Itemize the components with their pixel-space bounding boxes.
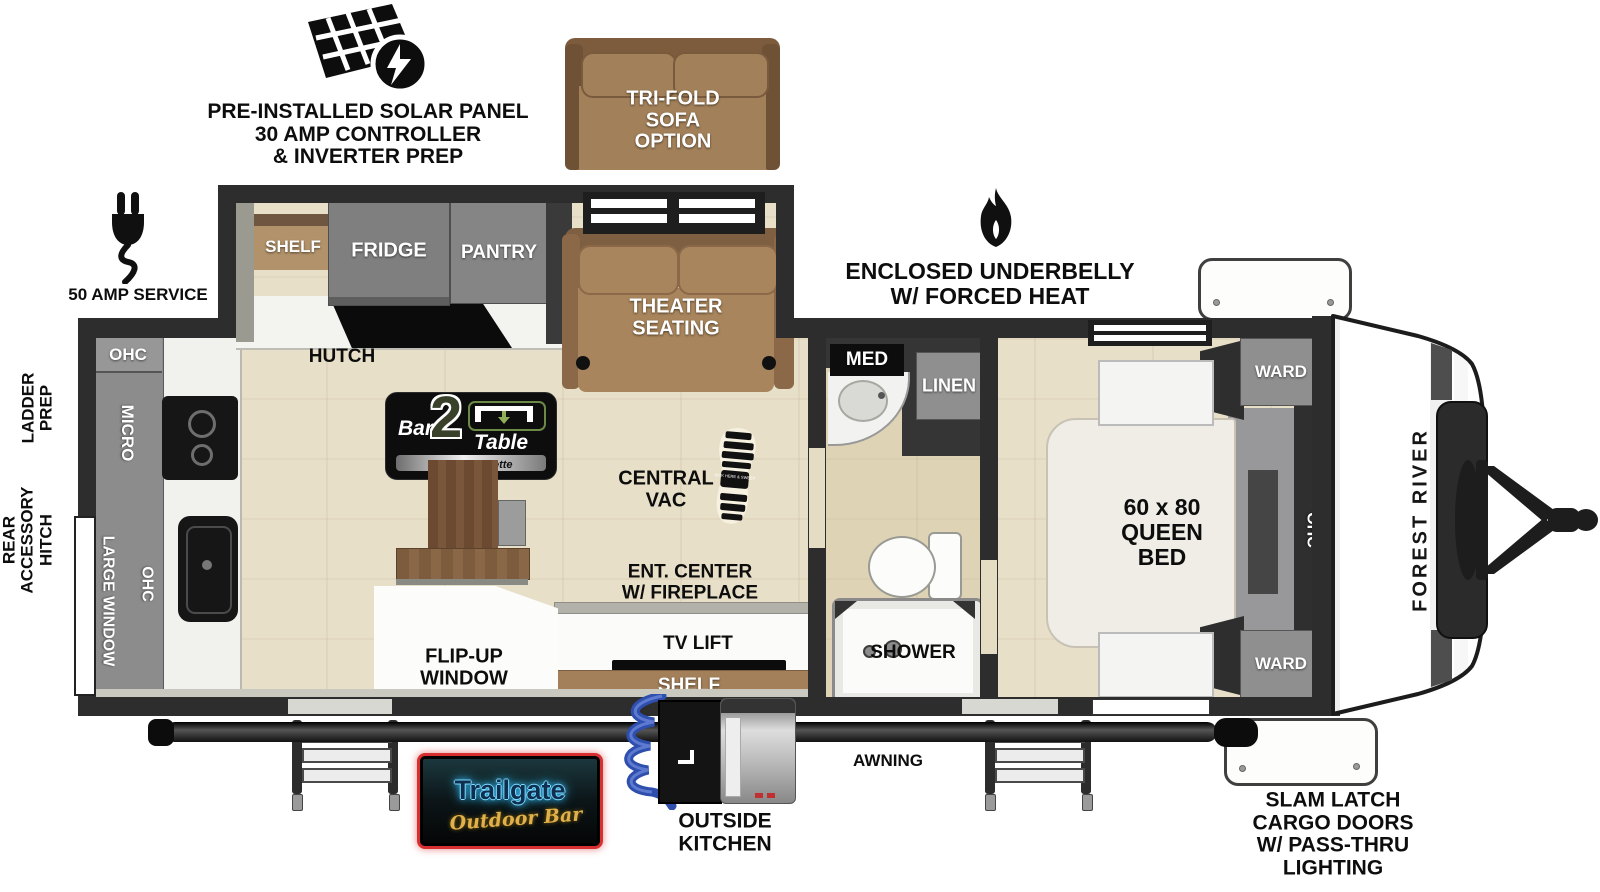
ent-line2: W/ FIREPLACE — [622, 583, 758, 604]
solar-line1: PRE-INSTALLED SOLAR PANEL — [207, 101, 528, 124]
bar2table-bar: Bar — [398, 417, 433, 441]
tv-lift-label: TV LIFT — [663, 634, 733, 654]
entry-door-gap-right — [962, 699, 1058, 714]
flip-line1: FLIP-UP — [420, 646, 508, 668]
entry-door-gap-left — [288, 699, 392, 714]
hutch-label: HUTCH — [309, 347, 376, 367]
bootprint-icon: KICK HERE & SWEEP — [708, 424, 763, 528]
solar-annotation: PRE-INSTALLED SOLAR PANEL 30 AMP CONTROL… — [207, 101, 528, 169]
outside-kitchen-appliance — [720, 698, 796, 804]
theater-label: THEATER SEATING — [630, 296, 723, 339]
kitchen-ohc-side-label: OHC — [138, 566, 155, 602]
tri-fold-sofa: TRI-FOLD SOFA OPTION — [565, 38, 780, 172]
med-label: MED — [846, 350, 888, 370]
dinette-bench — [498, 500, 526, 546]
wall-slide-right — [776, 185, 794, 338]
kitchen-sink — [178, 516, 238, 622]
kitchen-large-window-label: LARGE WINDOW — [99, 536, 116, 667]
linen-label: LINEN — [922, 377, 976, 396]
window-bedroom-top — [1088, 320, 1212, 346]
tri-fold-label: TRI-FOLD SOFA OPTION — [626, 89, 719, 154]
bar2table-num: 2 — [430, 389, 462, 447]
central-vac-line2: VAC — [618, 490, 714, 512]
theater-line1: THEATER — [630, 296, 723, 318]
kitchen-micro-label: MICRO — [118, 405, 136, 462]
trailgate-logo: Trailgate Outdoor Bar — [417, 753, 603, 849]
bed-line3: BED — [1121, 544, 1203, 569]
hitch — [1452, 438, 1600, 602]
ent-line1: ENT. CENTER — [622, 562, 758, 583]
cargo-line2: CARGO DOORS — [1252, 812, 1413, 835]
ladder-line1: LADDER — [20, 373, 38, 444]
bed-tv — [1248, 470, 1278, 594]
ent-center-label: ENT. CENTER W/ FIREPLACE — [622, 562, 758, 603]
rear-hitch-annotation: REAR ACCESSORY HITCH — [0, 486, 55, 593]
theater-line2: SEATING — [630, 318, 723, 340]
underbelly-line1: ENCLOSED UNDERBELLY — [845, 259, 1134, 284]
cargo-line1: SLAM LATCH — [1252, 790, 1413, 813]
shower-pan: SHOWER — [832, 598, 984, 704]
nightstand-bottom — [1098, 632, 1214, 698]
nightstand-top — [1098, 360, 1214, 426]
ladder-line2: PREP — [38, 373, 56, 444]
brand-label: FOREST RIVER — [1411, 428, 1432, 612]
theater-seating: THEATER SEATING — [562, 228, 794, 395]
outside-line2: KITCHEN — [678, 833, 771, 856]
rear-line3: HITCH — [37, 486, 55, 593]
bed-label: 60 x 80 QUEEN BED — [1121, 495, 1203, 569]
tv-lift-cabinet: TV LIFT — [554, 602, 820, 672]
flip-up-window-label: FLIP-UP WINDOW — [420, 646, 508, 689]
awning-label: AWNING — [853, 752, 923, 770]
bar2table-icon — [468, 401, 546, 431]
linen-cabinet: LINEN — [916, 352, 982, 420]
central-vac-line1: CENTRAL — [618, 468, 714, 490]
flip-line2: WINDOW — [420, 668, 508, 690]
plug-icon — [104, 192, 152, 284]
flip-up-window-counter: FLIP-UP WINDOW — [374, 586, 558, 698]
bedroom-door-gap — [981, 560, 997, 654]
pantry: PANTRY — [450, 202, 548, 304]
shelf-label: SHELF — [265, 238, 321, 256]
bed-line1: 60 x 80 — [1121, 495, 1203, 520]
fridge-label: FRIDGE — [351, 241, 427, 262]
flame-icon — [972, 186, 1020, 252]
solar-line2: 30 AMP CONTROLLER — [207, 124, 528, 147]
dinette-table-top — [396, 548, 530, 580]
shelf-cabinet: SHELF — [254, 214, 332, 270]
bar2table-table: Table — [474, 431, 528, 455]
med-cabinet: MED — [830, 344, 904, 376]
pantry-label: PANTRY — [461, 243, 537, 263]
trailgate-sub: Outdoor Bar — [449, 806, 583, 835]
bath-door-gap — [809, 448, 825, 548]
tri-fold-line3: OPTION — [626, 132, 719, 154]
fridge: FRIDGE — [328, 200, 450, 306]
wall-top-right — [776, 318, 1316, 338]
rear-line1: REAR — [0, 486, 18, 593]
solar-panel-icon — [296, 0, 444, 100]
tri-fold-line2: SOFA — [626, 110, 719, 132]
solar-line3: & INVERTER PREP — [207, 146, 528, 169]
outside-kitchen-cabinet — [658, 700, 722, 804]
trailgate-name: Trailgate — [454, 776, 565, 804]
window-bedroom-bottom — [1092, 699, 1210, 715]
awning-cap-left — [148, 719, 174, 746]
window-theater — [583, 192, 765, 234]
underbelly-line2: W/ FORCED HEAT — [845, 284, 1134, 309]
cargo-line4: LIGHTING — [1252, 858, 1413, 881]
bed-line2: QUEEN — [1121, 520, 1203, 545]
rear-line2: ACCESSORY — [19, 486, 37, 593]
dinette-table-stem — [428, 460, 498, 552]
wall-slide-left — [218, 185, 236, 338]
tri-fold-line1: TRI-FOLD — [626, 89, 719, 111]
cargo-line3: W/ PASS-THRU — [1252, 835, 1413, 858]
window-rear — [74, 516, 96, 696]
outside-kitchen-label: OUTSIDE KITCHEN — [678, 810, 771, 855]
rv-floorplan: PRE-INSTALLED SOLAR PANEL 30 AMP CONTROL… — [0, 0, 1600, 892]
ladder-prep-annotation: LADDER PREP — [20, 373, 57, 444]
awning-cap-right — [1214, 718, 1258, 747]
underbelly-annotation: ENCLOSED UNDERBELLY W/ FORCED HEAT — [845, 259, 1134, 309]
slide-corner-lining — [236, 202, 254, 342]
dinette-table-edge — [396, 579, 528, 585]
toilet-bowl — [868, 536, 936, 598]
amp-service-label: 50 AMP SERVICE — [68, 286, 208, 304]
wall-rear-top — [78, 318, 236, 338]
central-vac-label: CENTRAL VAC — [618, 468, 714, 511]
cargo-doors-annotation: SLAM LATCH CARGO DOORS W/ PASS-THRU LIGH… — [1252, 790, 1413, 881]
kitchen-ohc-label: OHC — [109, 346, 147, 364]
shower-label: SHOWER — [870, 643, 956, 663]
cooktop — [162, 396, 238, 480]
outside-line1: OUTSIDE — [678, 810, 771, 833]
